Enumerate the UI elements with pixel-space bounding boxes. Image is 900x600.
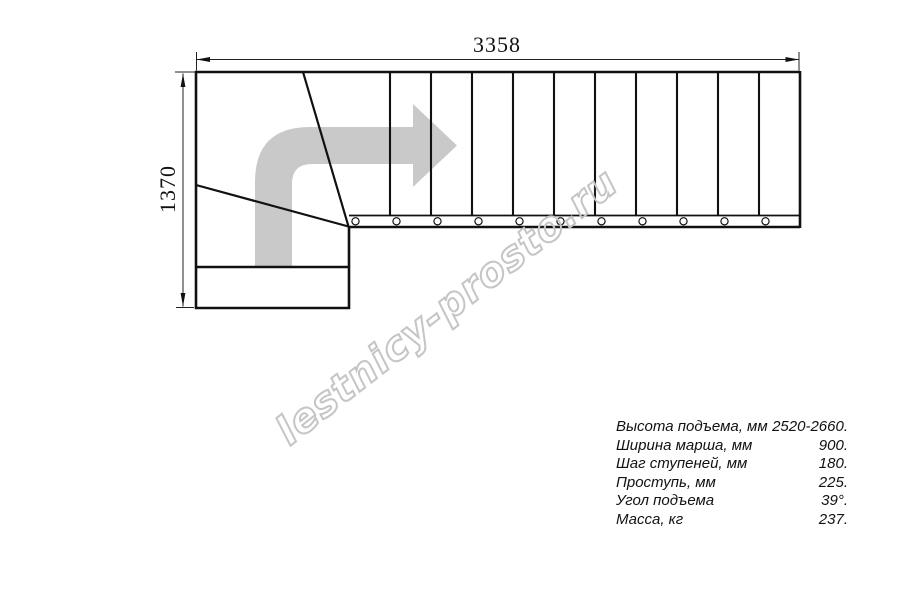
spec-label: Высота подъема, мм (616, 418, 768, 437)
spec-value: 180. (819, 455, 848, 474)
spec-row: Масса, кг 237. (616, 511, 848, 530)
baluster-circle (393, 218, 400, 225)
baluster-circle (557, 218, 564, 225)
turn-right-arrow-icon (255, 104, 457, 267)
spec-value: 2520-2660. (772, 418, 848, 437)
handrail-strip (349, 216, 800, 225)
baluster-circle (680, 218, 687, 225)
dim-arrow-down (181, 293, 186, 307)
baluster-circle (721, 218, 728, 225)
spec-label: Угол подъема (616, 492, 714, 511)
spec-label: Масса, кг (616, 511, 683, 530)
baluster-circle (352, 218, 359, 225)
baluster-circle (434, 218, 441, 225)
spec-label: Проступь, мм (616, 474, 716, 493)
dim-arrow-left (197, 57, 211, 62)
baluster-circle (516, 218, 523, 225)
dim-arrow-up (181, 74, 186, 88)
baluster-circle (762, 218, 769, 225)
spec-label: Шаг ступеней, мм (616, 455, 747, 474)
baluster-circle (598, 218, 605, 225)
spec-row: Угол подъема 39°. (616, 492, 848, 511)
spec-value: 900. (819, 437, 848, 456)
baluster-circle (639, 218, 646, 225)
dimension-height-label: 1370 (155, 139, 181, 239)
spec-value: 225. (819, 474, 848, 493)
spec-value: 39°. (821, 492, 848, 511)
staircase-drawing-page: 3358 1370 lestnicy-prosto.ru Высота подъ… (0, 0, 900, 600)
baluster-circles (352, 218, 769, 225)
baluster-circle (475, 218, 482, 225)
spec-row: Высота подъема, мм 2520-2660. (616, 418, 848, 437)
spec-label: Ширина марша, мм (616, 437, 752, 456)
dim-arrow-right (786, 57, 800, 62)
spec-value: 237. (819, 511, 848, 530)
spec-table: Высота подъема, мм 2520-2660. Ширина мар… (616, 418, 848, 530)
spec-row: Проступь, мм 225. (616, 474, 848, 493)
spec-row: Шаг ступеней, мм 180. (616, 455, 848, 474)
dimension-width-label: 3358 (447, 32, 547, 58)
spec-row: Ширина марша, мм 900. (616, 437, 848, 456)
